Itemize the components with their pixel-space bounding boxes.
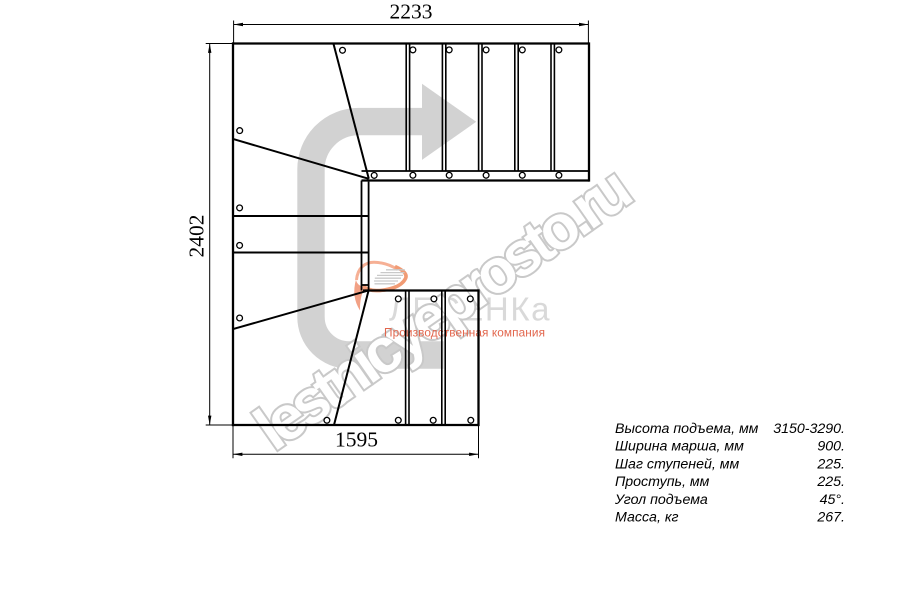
svg-text:Производственная компания: Производственная компания	[384, 326, 545, 340]
svg-text:2402: 2402	[185, 215, 209, 258]
svg-text:900.: 900.	[817, 439, 845, 455]
svg-text:Угол подъема: Угол подъема	[614, 492, 708, 508]
svg-text:267.: 267.	[816, 510, 845, 526]
svg-text:Проступь, мм: Проступь, мм	[615, 474, 710, 490]
svg-text:3150-3290.: 3150-3290.	[773, 421, 845, 437]
svg-text:2233: 2233	[390, 0, 433, 24]
svg-text:45°.: 45°.	[820, 492, 845, 508]
svg-text:Высота подъема, мм: Высота подъема, мм	[615, 421, 759, 437]
svg-text:1595: 1595	[335, 428, 378, 452]
svg-text:Ширина марша, мм: Ширина марша, мм	[615, 439, 744, 455]
svg-text:Масса, кг: Масса, кг	[615, 510, 679, 526]
svg-text:225.: 225.	[816, 474, 845, 490]
svg-text:Шаг ступеней, мм: Шаг ступеней, мм	[615, 456, 739, 472]
svg-text:225.: 225.	[816, 456, 845, 472]
